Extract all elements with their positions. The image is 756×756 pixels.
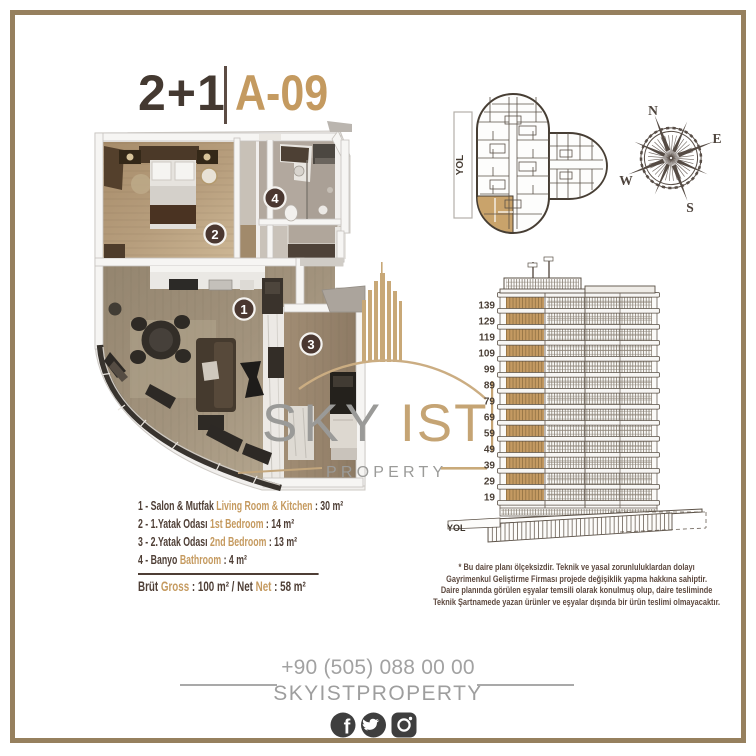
svg-text:109: 109	[478, 349, 495, 360]
svg-text:E: E	[712, 131, 721, 146]
svg-text:YOL: YOL	[447, 523, 466, 533]
svg-text:79: 79	[484, 397, 496, 408]
svg-text:119: 119	[479, 333, 496, 344]
svg-text:YOL: YOL	[455, 155, 466, 176]
svg-text:1: 1	[240, 302, 247, 317]
svg-text:IST: IST	[400, 394, 488, 453]
svg-text:W: W	[619, 173, 633, 188]
svg-text:SKY: SKY	[262, 394, 386, 453]
svg-text:3: 3	[307, 337, 314, 352]
svg-text:139: 139	[478, 301, 495, 312]
svg-text:69: 69	[484, 413, 496, 424]
svg-text:49: 49	[484, 445, 496, 456]
svg-text:59: 59	[484, 429, 496, 440]
svg-text:2: 2	[211, 227, 218, 242]
svg-text:29: 29	[484, 477, 496, 488]
svg-text:129: 129	[478, 317, 495, 328]
svg-text:f: f	[344, 717, 351, 739]
svg-text:4: 4	[271, 191, 279, 206]
svg-text:99: 99	[484, 365, 496, 376]
svg-text:S: S	[686, 200, 694, 215]
svg-text:19: 19	[484, 493, 496, 504]
svg-text:39: 39	[484, 461, 496, 472]
svg-text:89: 89	[484, 381, 496, 392]
svg-text:N: N	[648, 103, 658, 118]
svg-text:PROPERTY: PROPERTY	[326, 464, 447, 481]
